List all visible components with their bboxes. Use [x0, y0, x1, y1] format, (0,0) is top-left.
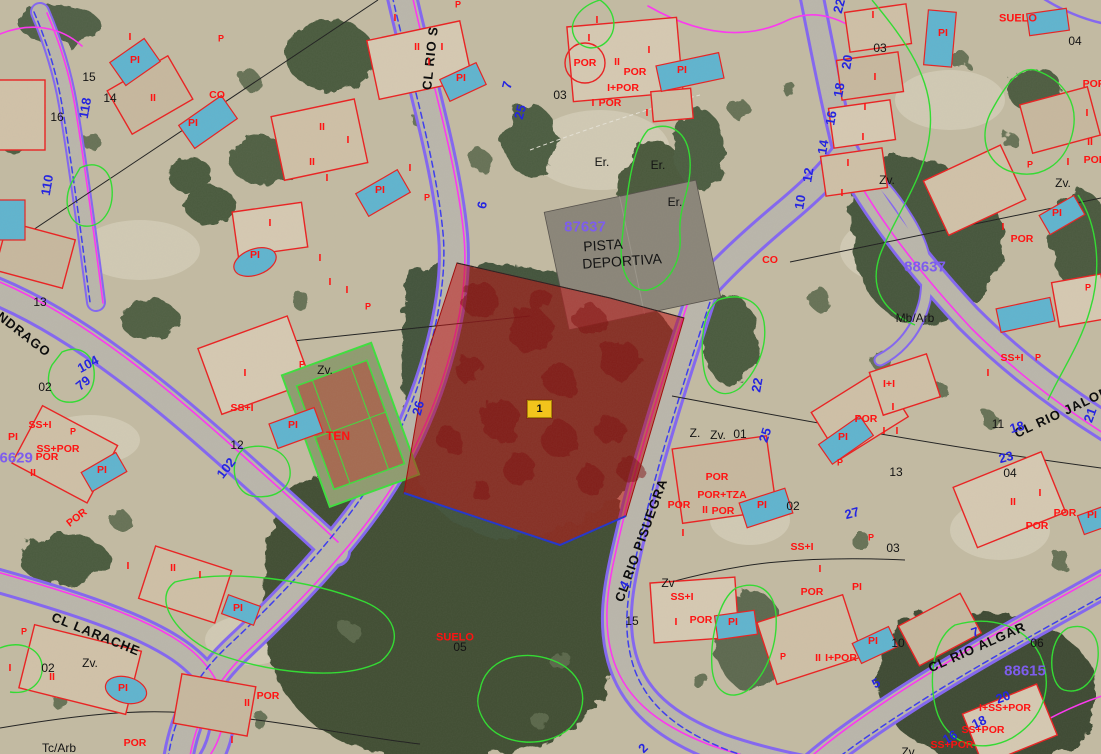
- cadastre-code-label: POR: [574, 58, 597, 69]
- cadastre-code-label: I: [129, 32, 132, 43]
- parcel-annotation-label: 03: [553, 89, 566, 101]
- house-number-label: 18: [1008, 419, 1025, 435]
- cadastre-code-label: I: [244, 368, 247, 379]
- house-number-label: 14: [815, 139, 830, 156]
- cadastre-code-label: I: [329, 277, 332, 288]
- cadastre-code-label: II: [309, 157, 315, 168]
- parcel-annotation-label: Zv.: [82, 657, 98, 669]
- cadastre-code-label: I: [892, 402, 895, 413]
- cadastre-code-label: PI: [250, 250, 260, 261]
- parcel-annotation-label: 15: [82, 71, 95, 83]
- parcel-annotation-label: Zv: [661, 577, 674, 589]
- cadastre-code-label: PI: [677, 65, 687, 76]
- house-number-label: 10: [792, 194, 807, 211]
- cadastre-code-label: I: [127, 561, 130, 572]
- cadastre-code-label: P: [218, 35, 224, 44]
- cadastre-code-label: P: [299, 361, 305, 370]
- house-number-label: 5: [870, 676, 883, 691]
- cadastre-code-label: PI: [868, 636, 878, 647]
- street-name-label: ANDRAGO: [0, 303, 53, 359]
- house-number-label: 22: [749, 377, 764, 394]
- cadastre-code-label: POR: [599, 98, 622, 109]
- cadastre-code-label: P: [455, 1, 461, 10]
- parcel-annotation-label: Zv.: [879, 174, 895, 186]
- house-number-label: 2: [636, 741, 650, 754]
- cadastre-code-label: PI: [233, 603, 243, 614]
- cadastre-code-label: POR: [855, 414, 878, 425]
- cadastre-code-label: I: [819, 564, 822, 575]
- parcel-annotation-label: Zv.: [710, 429, 726, 441]
- parcel-annotation-label: 03: [886, 542, 899, 554]
- house-number-label: 25: [757, 426, 774, 444]
- parcel-annotation-label: Z.: [690, 427, 701, 439]
- cadastre-code-label: I: [648, 45, 651, 56]
- cadastre-code-label: I: [872, 10, 875, 21]
- cadastre-code-label: I: [269, 218, 272, 229]
- cadastre-code-label: I: [1086, 108, 1089, 119]
- parcel-annotation-label: Er.: [595, 156, 610, 168]
- cadastre-code-label: P: [424, 194, 430, 203]
- cadastre-code-label: PI: [456, 73, 466, 84]
- parcel-annotation-label: 04: [1003, 467, 1016, 479]
- house-number-label: 27: [843, 505, 860, 521]
- house-number-label: 18: [831, 82, 846, 99]
- parcel-annotation-label: Tc/Arb: [42, 742, 76, 754]
- cadastre-code-label: POR: [706, 472, 729, 483]
- cadastral-map-viewport[interactable]: CL RIO SCL RIO PISUEGRACL RIO JALONCL RI…: [0, 0, 1101, 754]
- parcel-annotation-label: 12: [230, 439, 243, 451]
- cadastre-code-label: I: [346, 285, 349, 296]
- cadastre-code-label: POR+TZA: [697, 490, 746, 501]
- cadastre-code-label: POR: [1083, 79, 1101, 90]
- cadastre-code-label: POR: [801, 587, 824, 598]
- parcel-annotation-label: 11: [992, 418, 1004, 430]
- house-number-label: 7: [969, 625, 980, 640]
- cadastre-code-label: PI: [938, 28, 948, 39]
- cadastre-code-label: I: [847, 158, 850, 169]
- cadastre-code-label: P: [70, 428, 76, 437]
- house-number-label: 104: [75, 353, 100, 375]
- cadastre-code-label: SS+I: [28, 420, 51, 431]
- cadastre-code-label: I: [428, 57, 431, 68]
- cadastre-code-label: I+POR: [825, 653, 857, 664]
- cadastre-code-label: II: [1087, 137, 1093, 148]
- cadastre-code-label: II: [170, 563, 176, 574]
- cadastre-code-label: POR: [1084, 155, 1101, 166]
- cadastre-code-label: PI: [838, 432, 848, 443]
- street-name-label: CL LARACHE: [50, 610, 142, 657]
- parcel-annotation-label: 13: [33, 296, 46, 308]
- cadastre-code-label: POR: [712, 506, 735, 517]
- cadastre-code-label: II: [150, 93, 156, 104]
- cadastre-code-label: II: [1010, 497, 1016, 508]
- parcel-annotation-label: Zv.: [1055, 177, 1071, 189]
- cadastre-code-label: PI: [375, 185, 385, 196]
- cadastre-code-label: II: [702, 505, 708, 516]
- cadastre-code-label: I: [347, 135, 350, 146]
- cadastre-code-label: I+I: [883, 379, 895, 390]
- cadastre-code-label: I: [1039, 488, 1042, 499]
- cadastre-code-label: SS+I: [230, 403, 253, 414]
- cadastre-code-label: PI: [8, 432, 18, 443]
- cadastre-code-label: PI: [757, 500, 767, 511]
- house-number-label: 20: [839, 54, 854, 71]
- cadastre-code-label: SS+I: [790, 542, 813, 553]
- parcel-annotation-label: Zv: [901, 746, 914, 754]
- cadastre-code-label: PI: [118, 683, 128, 694]
- cadastre-code-label: SUELO: [436, 633, 474, 644]
- cadastre-code-label: PI: [1087, 510, 1097, 521]
- parcel-marker[interactable]: 1: [527, 400, 552, 418]
- house-number-label: 102: [214, 455, 238, 480]
- cadastre-code-label: SS+I: [1000, 353, 1023, 364]
- cadastre-code-label: POR: [124, 738, 147, 749]
- cadastre-code-label: I: [864, 102, 867, 113]
- parcel-annotation-label: DEPORTIVA: [582, 251, 662, 271]
- parcel-annotation-label: 10: [891, 637, 904, 649]
- parcel-marker-number: 1: [536, 403, 542, 415]
- cadastre-code-label: POR: [624, 67, 647, 78]
- house-number-label: 21: [1081, 406, 1098, 424]
- cadastre-code-label: POR: [668, 500, 691, 511]
- house-number-label: 110: [39, 174, 55, 197]
- cadastre-code-label: I: [675, 617, 678, 628]
- cadastre-code-label: I: [862, 132, 865, 143]
- cadastre-code-label: I: [592, 98, 595, 109]
- cadastre-code-label: SUELO: [999, 14, 1037, 25]
- cadastre-code-label: CO: [209, 90, 225, 101]
- parcel-annotation-label: 06: [1030, 637, 1043, 649]
- cadastre-code-label: I: [646, 108, 649, 119]
- parcel-annotation-label: 04: [1068, 35, 1081, 47]
- cadastre-code-label: PI: [288, 420, 298, 431]
- house-number-label: 23: [997, 449, 1014, 465]
- cadastre-code-label: P: [868, 534, 874, 543]
- house-number-label: 6: [475, 200, 489, 210]
- block-number-label: 88615: [1004, 664, 1046, 679]
- cadastre-code-label: I: [1067, 157, 1070, 168]
- cadastre-code-label: I: [874, 72, 877, 83]
- cadastre-code-label: II: [244, 698, 250, 709]
- cadastre-code-label: I: [199, 570, 202, 581]
- cadastre-code-label: SS+POR: [931, 740, 974, 751]
- cadastre-code-label: I: [409, 163, 412, 174]
- cadastre-code-label: I: [319, 253, 322, 264]
- parcel-annotation-label: PISTA: [583, 237, 623, 254]
- parcel-annotation-label: 15: [625, 615, 638, 627]
- parcel-annotation-label: 14: [103, 92, 116, 104]
- cadastre-code-label: I: [588, 33, 591, 44]
- parcel-annotation-label: Mb/Arb: [896, 312, 935, 324]
- parcel-annotation-label: Er.: [651, 159, 666, 171]
- map-label-layer: CL RIO SCL RIO PISUEGRACL RIO JALONCL RI…: [0, 0, 1101, 754]
- house-number-label: 22: [831, 0, 847, 15]
- cadastre-code-label: I: [394, 13, 397, 24]
- cadastre-code-label: P: [1035, 354, 1041, 363]
- cadastre-code-label: POR: [1011, 234, 1034, 245]
- block-number-label: 87637: [564, 220, 606, 235]
- cadastre-code-label: II: [49, 672, 55, 683]
- house-number-label: 12: [800, 167, 815, 184]
- cadastre-code-label: I: [987, 368, 990, 379]
- cadastre-code-label: II: [319, 122, 325, 133]
- cadastre-code-label: PI: [728, 617, 738, 628]
- cadastre-code-label: I+SS+POR: [979, 703, 1031, 714]
- cadastre-code-label: PI: [97, 465, 107, 476]
- cadastre-code-label: POR: [1054, 508, 1077, 519]
- parcel-annotation-label: 02: [786, 500, 799, 512]
- parcel-annotation-label: 13: [889, 466, 902, 478]
- cadastre-code-label: I: [841, 188, 844, 199]
- cadastre-code-label: I: [682, 528, 685, 539]
- cadastre-code-label: POR: [257, 691, 280, 702]
- cadastre-code-label: I: [896, 426, 899, 437]
- house-number-label: 79: [73, 373, 92, 392]
- cadastre-code-label: II: [414, 42, 420, 53]
- cadastre-code-label: POR: [690, 615, 713, 626]
- house-number-label: 118: [77, 97, 93, 120]
- cadastre-code-label: II: [614, 57, 620, 68]
- cadastre-code-label: I+POR: [607, 83, 639, 94]
- house-number-label: 25: [512, 103, 528, 120]
- parcel-annotation-label: Er.: [668, 196, 683, 208]
- cadastre-code-label: I: [9, 663, 12, 674]
- parcel-annotation-label: 16: [50, 111, 63, 123]
- cadastre-code-label: P: [837, 459, 843, 468]
- cadastre-code-label: POR: [65, 507, 89, 529]
- block-number-label: 88637: [904, 260, 946, 275]
- parcel-annotation-label: 03: [873, 42, 886, 54]
- house-number-label: 7: [500, 80, 514, 90]
- cadastre-code-label: I: [883, 426, 886, 437]
- cadastre-code-label: P: [21, 628, 27, 637]
- cadastre-code-label: I: [596, 15, 599, 26]
- cadastre-code-label: SS+POR: [962, 725, 1005, 736]
- cadastre-code-label: SS+I: [670, 592, 693, 603]
- cadastre-code-label: I: [231, 735, 234, 746]
- cadastre-code-label: I: [326, 173, 329, 184]
- parcel-annotation-label: Zv.: [317, 364, 333, 376]
- block-number-label: 86629: [0, 451, 33, 466]
- cadastre-code-label: II: [815, 653, 821, 664]
- cadastre-code-label: PI: [130, 55, 140, 66]
- cadastre-code-label: PI: [188, 118, 198, 129]
- cadastre-code-label: POR: [1026, 521, 1049, 532]
- parcel-annotation-label: 02: [38, 381, 51, 393]
- cadastre-code-label: PI: [1052, 208, 1062, 219]
- cadastre-code-label: P: [1085, 284, 1091, 293]
- cadastre-code-label: I: [441, 42, 444, 53]
- cadastre-code-label: POR: [36, 452, 59, 463]
- cadastre-code-label: P: [780, 653, 786, 662]
- parcel-annotation-label: 01: [733, 428, 746, 440]
- cadastre-code-label: CO: [762, 255, 778, 266]
- cadastre-code-label: II: [30, 468, 36, 479]
- cadastre-code-label: I: [1002, 222, 1005, 233]
- cadastre-code-label: P: [365, 303, 371, 312]
- cadastre-code-label: TEN: [326, 430, 350, 442]
- house-number-label: 16: [823, 110, 838, 127]
- house-number-label: 26: [410, 399, 426, 416]
- cadastre-code-label: P: [1027, 161, 1033, 170]
- cadastre-code-label: PI: [852, 582, 862, 593]
